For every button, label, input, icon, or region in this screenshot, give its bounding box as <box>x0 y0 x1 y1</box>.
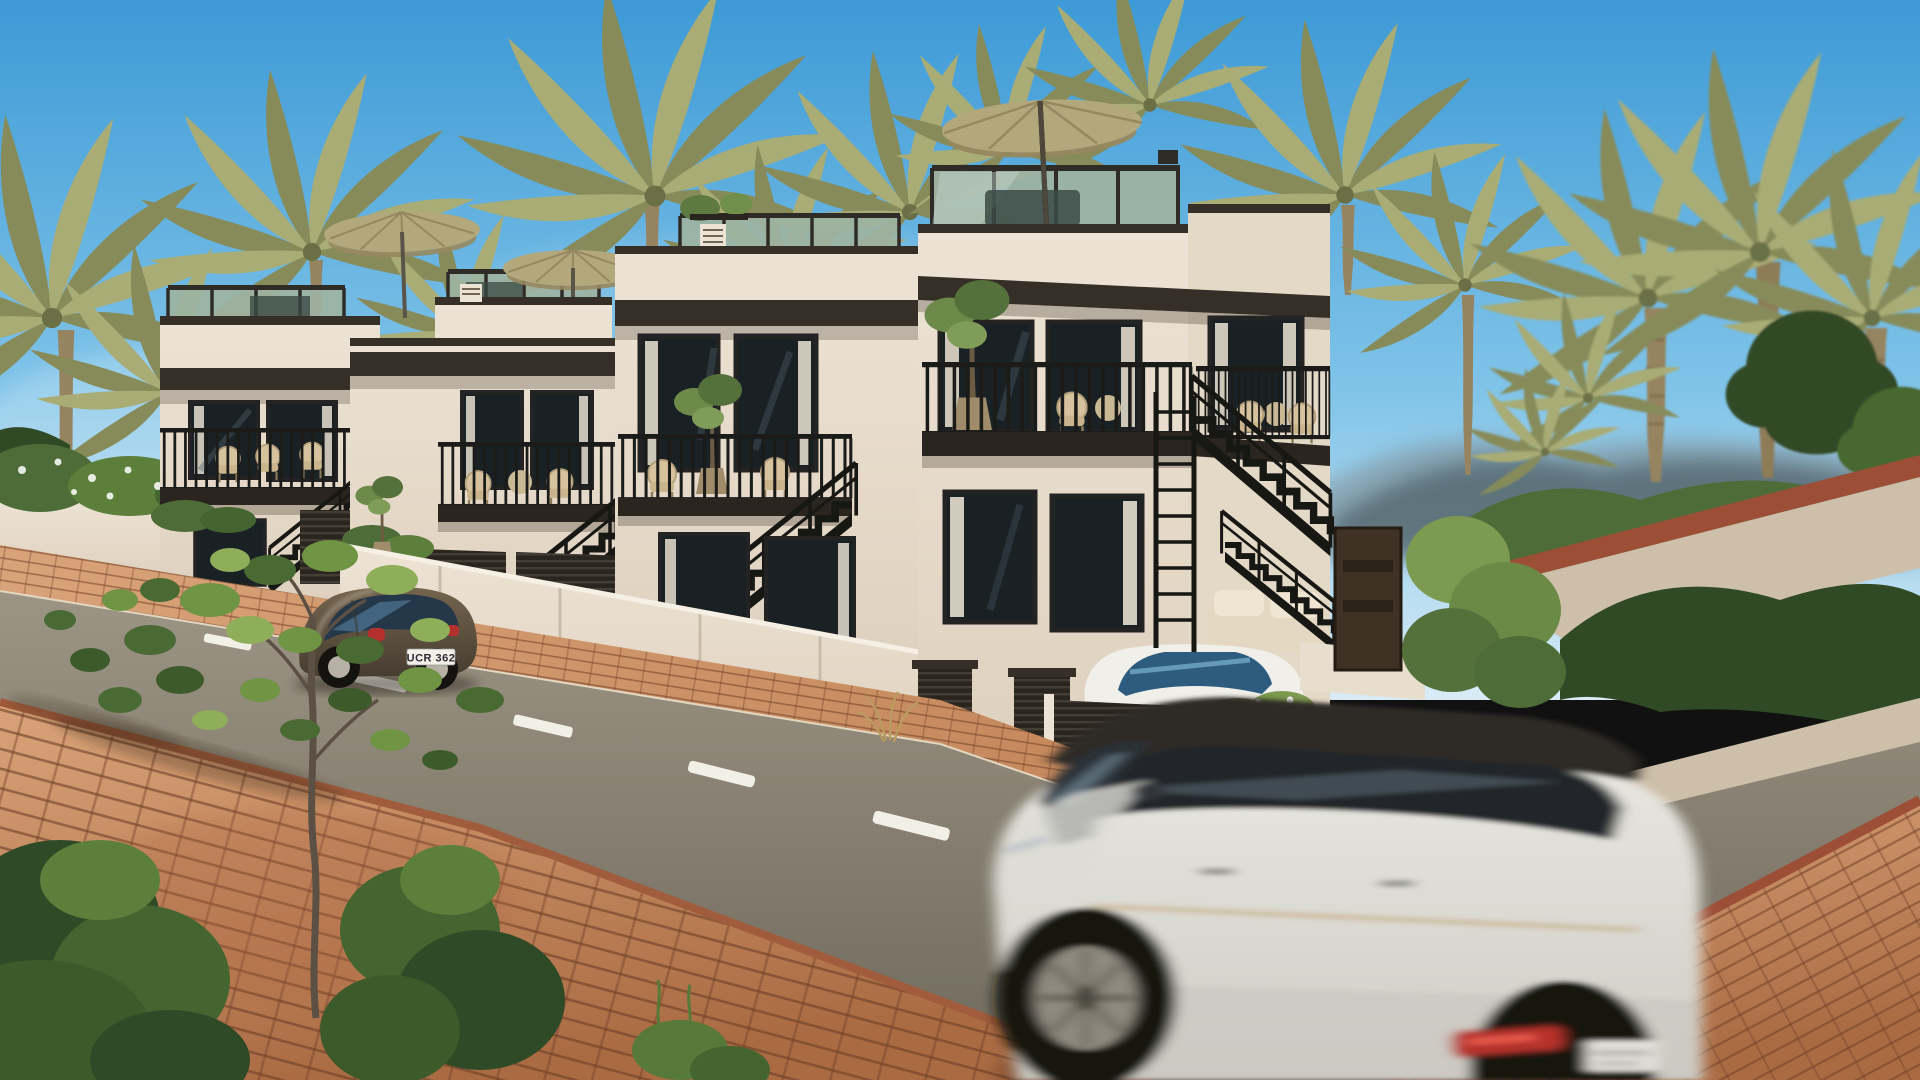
rooftop-terrace-1 <box>168 285 345 320</box>
render-stage: UCR 362 <box>0 0 1920 1080</box>
roof-vent <box>1158 150 1178 164</box>
street-scene: UCR 362 <box>0 0 1920 1080</box>
beetle-license-plate: UCR 362 <box>407 649 456 665</box>
front-door-4 <box>1335 528 1401 670</box>
chimney-vent-3 <box>700 224 726 248</box>
suv-car <box>993 697 1703 1080</box>
beetle-plate-text: UCR 362 <box>407 653 456 665</box>
suv-mirror <box>1132 783 1164 801</box>
suv-license-plate <box>1585 1040 1657 1072</box>
roof-lounger-4 <box>985 190 1080 226</box>
roof-lounger <box>250 296 310 318</box>
chimney-vent-2 <box>460 284 482 302</box>
